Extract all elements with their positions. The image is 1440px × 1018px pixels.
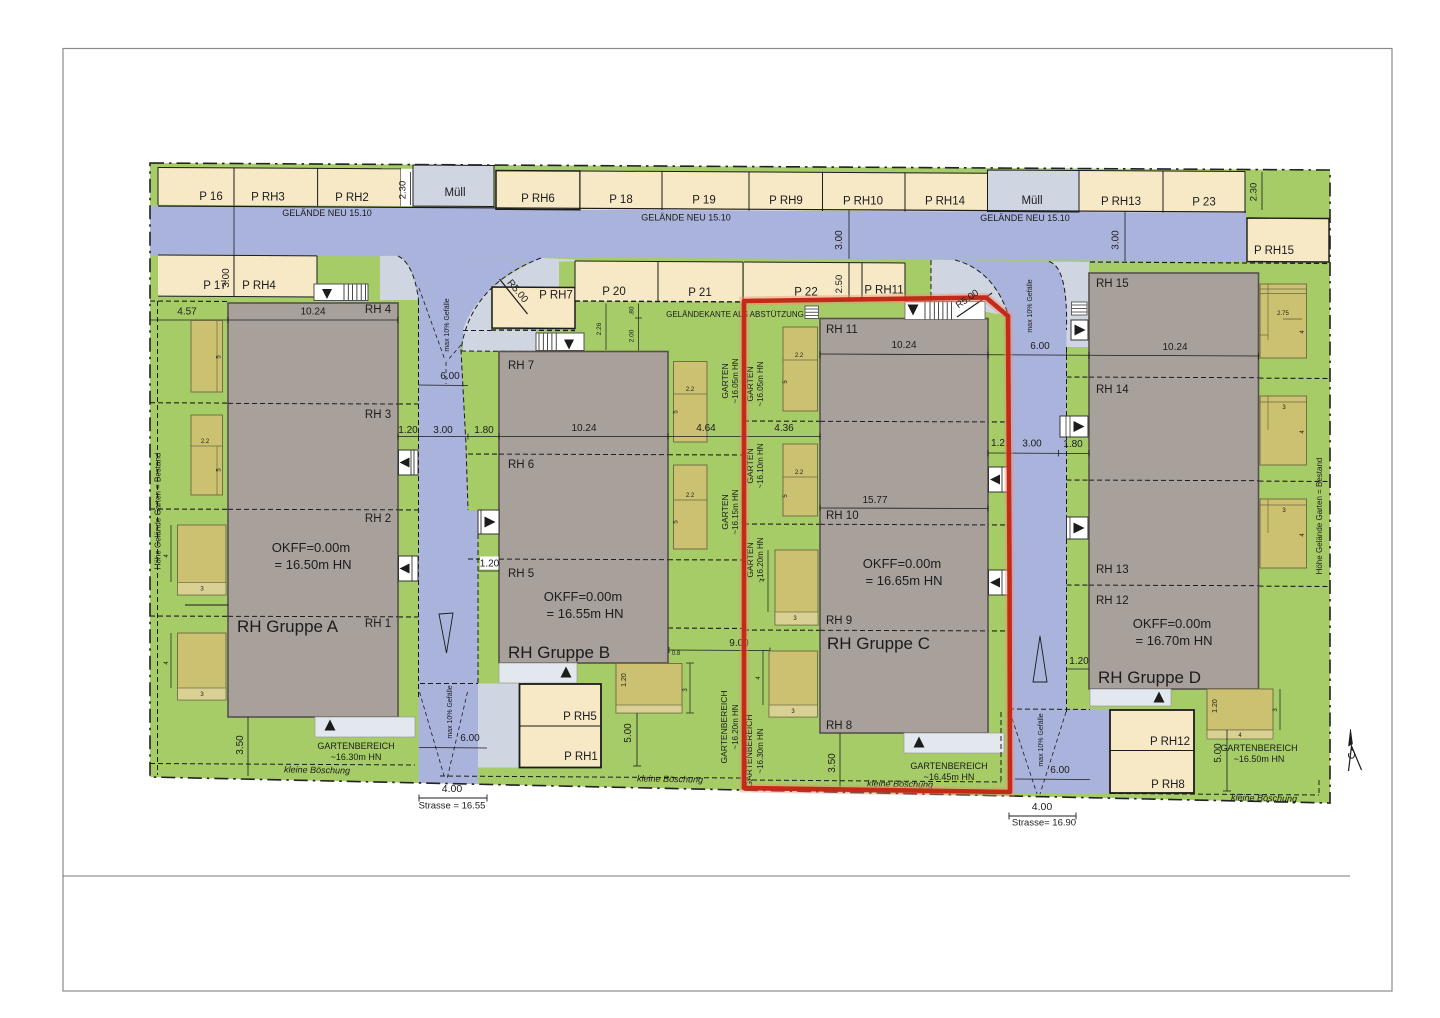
svg-text:~16.05m HN: ~16.05m HN: [756, 361, 765, 406]
svg-text:P RH6: P RH6: [521, 193, 555, 205]
svg-text:~16.10m HN: ~16.10m HN: [756, 443, 765, 488]
svg-text:Höhe Gelände Garten = Bestand: Höhe Gelände Garten = Bestand: [1315, 458, 1324, 575]
svg-text:GARTEN: GARTEN: [720, 494, 730, 529]
svg-text:RH 2: RH 2: [365, 513, 391, 525]
svg-text:6.00: 6.00: [440, 371, 460, 382]
svg-text:P 16: P 16: [199, 191, 222, 203]
svg-text:Höhe Gelände Garten = Bestand: Höhe Gelände Garten = Bestand: [154, 453, 163, 570]
svg-text:Müll: Müll: [1021, 195, 1042, 207]
svg-text:P 20: P 20: [602, 286, 625, 298]
svg-text:RH 15: RH 15: [1096, 278, 1129, 290]
svg-text:RH 13: RH 13: [1096, 564, 1129, 576]
svg-text:2.2: 2.2: [795, 470, 804, 476]
svg-text:P RH8: P RH8: [1151, 779, 1185, 791]
svg-text:= 16.65m HN: = 16.65m HN: [866, 573, 943, 588]
svg-text:OKFF=0.00m: OKFF=0.00m: [1133, 616, 1211, 631]
svg-text:3.00: 3.00: [834, 230, 845, 250]
svg-text:GELÄNDE NEU 15.10: GELÄNDE NEU 15.10: [282, 208, 372, 218]
svg-text:RH 6: RH 6: [508, 459, 534, 471]
svg-text:2.2: 2.2: [686, 387, 695, 393]
svg-text:RH Gruppe B: RH Gruppe B: [508, 643, 610, 662]
svg-text:OKFF=0.00m: OKFF=0.00m: [863, 556, 941, 571]
svg-text:Müll: Müll: [444, 187, 465, 199]
svg-text:kleine Böschung: kleine Böschung: [637, 773, 703, 784]
svg-text:RH 1: RH 1: [365, 618, 391, 630]
svg-text:RH 11: RH 11: [826, 324, 858, 336]
svg-text:1.80: 1.80: [474, 425, 494, 436]
svg-text:4.64: 4.64: [696, 423, 716, 434]
svg-text:GARTENBEREICH: GARTENBEREICH: [719, 690, 729, 763]
svg-text:1.80: 1.80: [1063, 439, 1083, 450]
svg-text:~16.30m HN: ~16.30m HN: [331, 752, 382, 762]
svg-text:RH Gruppe A: RH Gruppe A: [237, 617, 339, 636]
svg-text:4.00: 4.00: [1032, 801, 1053, 813]
svg-text:1.2: 1.2: [991, 438, 1005, 449]
svg-text:= 16.55m HN: = 16.55m HN: [547, 606, 624, 621]
svg-text:P 18: P 18: [609, 194, 632, 206]
svg-text:2.30: 2.30: [1249, 183, 1260, 202]
svg-text:2.2: 2.2: [795, 353, 804, 359]
svg-text:2.26: 2.26: [596, 322, 603, 335]
svg-text:~16.50m HN: ~16.50m HN: [1234, 754, 1285, 764]
svg-text:3.00: 3.00: [1022, 439, 1042, 450]
svg-text:6.00: 6.00: [460, 733, 480, 744]
svg-text:2.2: 2.2: [686, 493, 695, 499]
svg-text:RH 12: RH 12: [1096, 595, 1129, 607]
svg-text:Strasse = 16.55: Strasse = 16.55: [419, 801, 486, 812]
svg-text:10.24: 10.24: [300, 307, 325, 318]
svg-text:3.00: 3.00: [433, 425, 453, 436]
svg-text:~16.05m HN: ~16.05m HN: [731, 358, 740, 403]
svg-text:3.00: 3.00: [1111, 230, 1122, 250]
svg-text:Strasse= 16.90: Strasse= 16.90: [1012, 818, 1076, 829]
svg-text:GELÄNDE NEU 15.10: GELÄNDE NEU 15.10: [980, 213, 1070, 223]
svg-text:2.50: 2.50: [834, 275, 845, 294]
svg-text:RH 8: RH 8: [826, 720, 852, 732]
svg-text:max 10% Gefälle: max 10% Gefälle: [1038, 713, 1045, 766]
svg-text:max 10% Gefälle: max 10% Gefälle: [447, 685, 454, 738]
svg-text:max 10% Gefälle: max 10% Gefälle: [444, 298, 451, 351]
svg-text:2.75: 2.75: [1277, 311, 1289, 317]
svg-text:P 23: P 23: [1192, 197, 1215, 209]
svg-text:P RH9: P RH9: [769, 195, 803, 207]
svg-text:GARTENBEREICH: GARTENBEREICH: [317, 741, 394, 751]
svg-text:RH 7: RH 7: [508, 360, 534, 372]
svg-text:3.00: 3.00: [221, 268, 232, 288]
svg-text:OKFF=0.00m: OKFF=0.00m: [272, 540, 350, 555]
svg-text:3.50: 3.50: [235, 735, 246, 755]
svg-text:RH 14: RH 14: [1096, 384, 1129, 396]
svg-text:~16.15m HN: ~16.15m HN: [731, 489, 740, 534]
svg-text:4.36: 4.36: [774, 423, 794, 434]
svg-text:10.24: 10.24: [571, 423, 596, 434]
svg-text:P RH4: P RH4: [242, 280, 276, 292]
svg-text:RH 4: RH 4: [365, 304, 392, 316]
svg-text:2.00: 2.00: [629, 329, 636, 342]
svg-text:6.00: 6.00: [1050, 765, 1070, 776]
svg-text:P RH7: P RH7: [539, 290, 573, 302]
svg-text:P RH14: P RH14: [925, 196, 966, 208]
svg-text:0.8: 0.8: [672, 651, 681, 657]
svg-text:RH 3: RH 3: [365, 409, 391, 421]
svg-text:P RH1: P RH1: [564, 751, 598, 763]
svg-text:1.20: 1.20: [1069, 656, 1089, 667]
svg-text:2.2: 2.2: [201, 439, 210, 445]
svg-text:P 19: P 19: [692, 195, 715, 207]
svg-text:P RH13: P RH13: [1101, 196, 1141, 208]
svg-text:P RH15: P RH15: [1254, 245, 1294, 257]
svg-text:GELÄNDE NEU 15.10: GELÄNDE NEU 15.10: [641, 213, 731, 223]
svg-text:3.50: 3.50: [827, 753, 838, 773]
svg-text:GARTENBEREICH: GARTENBEREICH: [1220, 743, 1297, 753]
svg-text:P RH3: P RH3: [251, 191, 285, 203]
svg-text:RH 5: RH 5: [508, 568, 534, 580]
svg-text:P 21: P 21: [688, 287, 711, 299]
svg-text:.80: .80: [629, 306, 636, 315]
svg-text:1.20: 1.20: [480, 559, 500, 570]
svg-text:RH Gruppe D: RH Gruppe D: [1098, 668, 1201, 687]
svg-text:4.00: 4.00: [442, 783, 463, 795]
svg-text:max 10% Gefälle: max 10% Gefälle: [1027, 279, 1034, 332]
svg-text:~16.20m HN: ~16.20m HN: [731, 704, 740, 749]
svg-text:RH 9: RH 9: [826, 615, 852, 627]
svg-text:~16.20m HN: ~16.20m HN: [756, 537, 765, 582]
svg-text:RH 10: RH 10: [826, 510, 859, 522]
svg-text:GELÄNDEKANTE ALS ABSTÜTZUNG: GELÄNDEKANTE ALS ABSTÜTZUNG: [666, 310, 804, 319]
svg-text:= 16.70m HN: = 16.70m HN: [1136, 633, 1213, 648]
svg-text:6.00: 6.00: [1030, 341, 1050, 352]
svg-text:P RH10: P RH10: [843, 195, 883, 207]
svg-text:GARTENBEREICH: GARTENBEREICH: [910, 761, 987, 771]
svg-text:10.24: 10.24: [891, 340, 916, 351]
svg-text:P RH2: P RH2: [335, 192, 369, 204]
svg-text:~16.30m HN: ~16.30m HN: [756, 728, 765, 773]
svg-text:2.30: 2.30: [398, 181, 409, 200]
svg-text:RH Gruppe C: RH Gruppe C: [827, 634, 930, 653]
svg-text:P RH12: P RH12: [1150, 736, 1190, 748]
svg-text:10.24: 10.24: [1162, 342, 1187, 353]
svg-text:5.00: 5.00: [623, 723, 634, 743]
svg-text:GARTEN: GARTEN: [720, 363, 730, 398]
svg-text:OKFF=0.00m: OKFF=0.00m: [544, 589, 622, 604]
svg-text:kleine Böschung: kleine Böschung: [284, 764, 350, 775]
svg-text:= 16.50m HN: = 16.50m HN: [275, 557, 352, 572]
svg-text:1.20: 1.20: [1212, 699, 1219, 713]
svg-text:4.57: 4.57: [177, 307, 197, 318]
svg-text:1.20: 1.20: [621, 673, 628, 687]
svg-text:P RH5: P RH5: [563, 711, 597, 723]
svg-text:15.77: 15.77: [862, 495, 887, 506]
svg-text:1.20: 1.20: [398, 425, 418, 436]
